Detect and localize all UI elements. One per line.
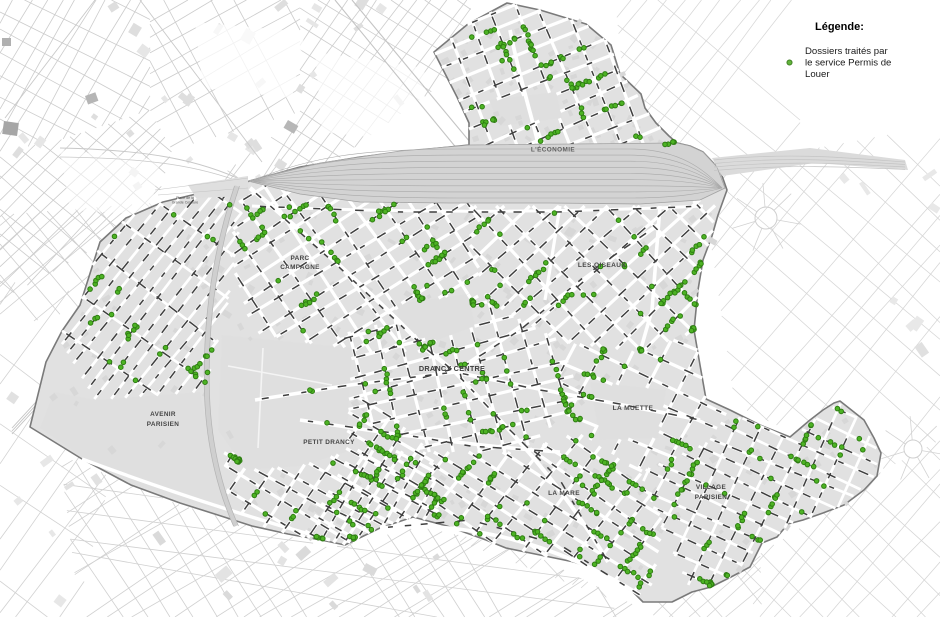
svg-text:Louer: Louer [805, 69, 830, 80]
svg-text:PARC: PARC [290, 255, 309, 262]
svg-text:VILLAGE: VILLAGE [696, 484, 727, 491]
svg-text:PETIT DRANCY: PETIT DRANCY [303, 439, 355, 446]
svg-text:le service Permis de: le service Permis de [805, 58, 891, 69]
svg-text:DRANCY CENTRE: DRANCY CENTRE [419, 364, 485, 373]
svg-text:PARISIEN: PARISIEN [147, 421, 180, 428]
svg-text:Dossiers traités par: Dossiers traités par [805, 46, 888, 57]
svg-text:CAMPAGNE: CAMPAGNE [280, 264, 320, 271]
svg-text:PARISIEN: PARISIEN [695, 494, 728, 501]
svg-text:Légende:: Légende: [815, 21, 864, 33]
svg-text:AVENIR: AVENIR [150, 411, 176, 418]
svg-text:LA MARE: LA MARE [548, 490, 580, 497]
svg-text:Place de la: Place de la [176, 196, 194, 200]
svg-text:LA MUETTE: LA MUETTE [613, 405, 654, 412]
svg-text:LES OISEAUX: LES OISEAUX [578, 262, 626, 269]
svg-text:Grande Ceinture: Grande Ceinture [172, 201, 199, 205]
svg-text:L'ÉCONOMIE: L'ÉCONOMIE [531, 145, 576, 154]
